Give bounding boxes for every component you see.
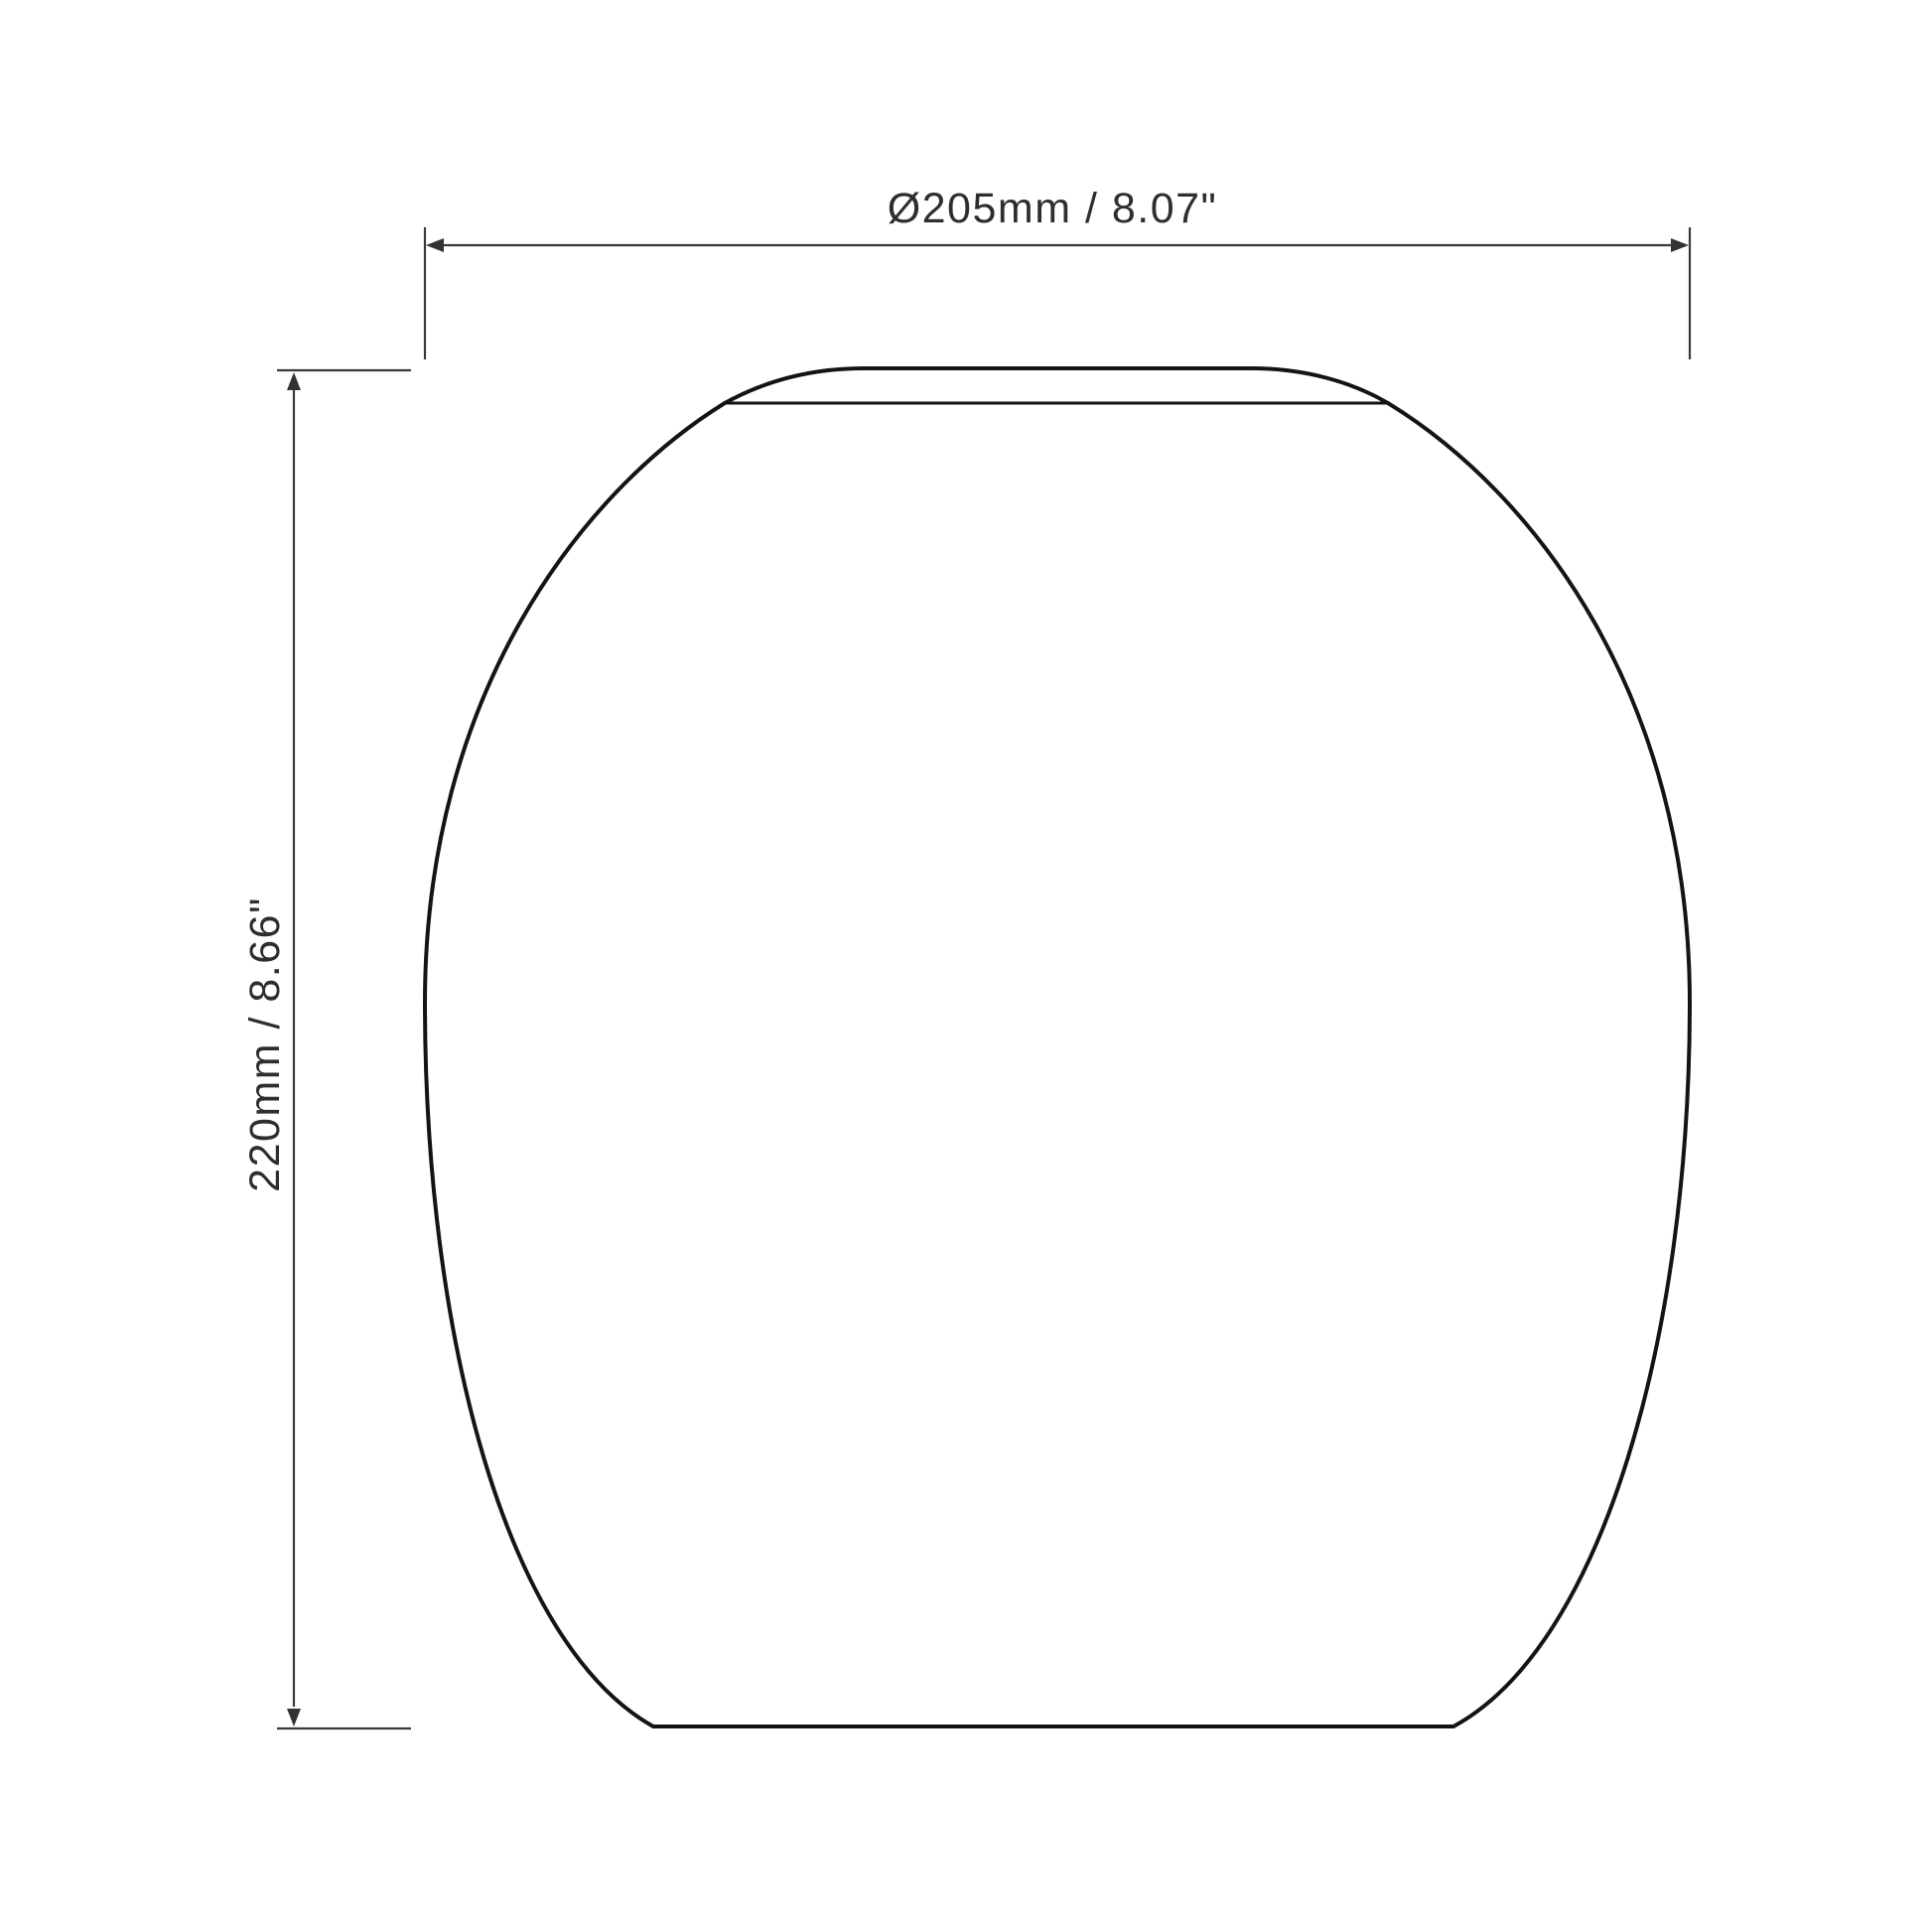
shade-outline (425, 368, 1690, 1726)
diameter-dimension: Ø205mm / 8.07" (425, 185, 1690, 359)
arrow-left-icon (426, 238, 444, 252)
arrow-down-icon (287, 1709, 301, 1726)
arrow-right-icon (1671, 238, 1689, 252)
shade-profile (425, 368, 1690, 1726)
arrow-up-icon (287, 372, 301, 390)
dimension-drawing: Ø205mm / 8.07" 220mm / 8.66" (0, 0, 1932, 1932)
drawing-svg: Ø205mm / 8.07" 220mm / 8.66" (0, 0, 1932, 1932)
height-dimension-label: 220mm / 8.66" (241, 897, 289, 1192)
height-dimension: 220mm / 8.66" (241, 370, 411, 1728)
diameter-dimension-label: Ø205mm / 8.07" (888, 185, 1218, 232)
